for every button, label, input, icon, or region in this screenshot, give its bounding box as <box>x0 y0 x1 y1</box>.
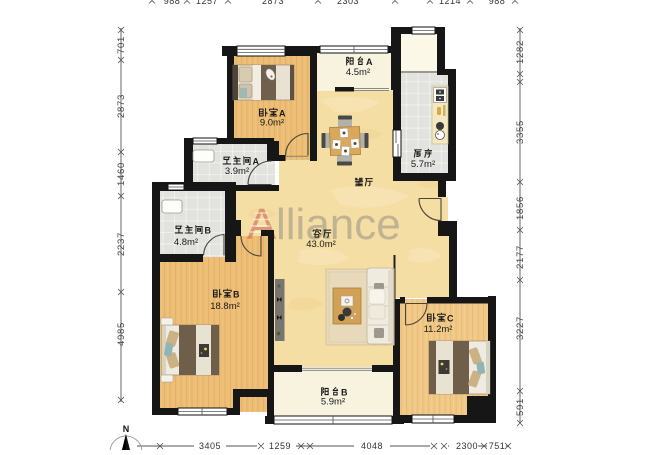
svg-text:1856: 1856 <box>515 196 526 220</box>
svg-text:3227: 3227 <box>515 316 526 340</box>
svg-text:1282: 1282 <box>515 40 526 64</box>
svg-text:4985: 4985 <box>116 322 127 346</box>
svg-text:4.5m²: 4.5m² <box>346 67 370 78</box>
svg-text:2300: 2300 <box>456 441 478 450</box>
svg-text:3355: 3355 <box>515 120 526 144</box>
svg-text:988: 988 <box>164 0 181 6</box>
svg-text:591: 591 <box>515 398 526 416</box>
svg-text:A: A <box>253 157 260 167</box>
svg-text:2237: 2237 <box>116 232 127 256</box>
svg-text:2177: 2177 <box>515 245 526 269</box>
svg-text:2873: 2873 <box>116 94 127 118</box>
svg-text:5.9m²: 5.9m² <box>321 397 345 408</box>
svg-text:988: 988 <box>489 0 506 6</box>
svg-text:701: 701 <box>116 36 127 54</box>
svg-text:9.0m²: 9.0m² <box>260 118 284 129</box>
svg-text:1259: 1259 <box>269 441 291 450</box>
svg-text:B: B <box>233 290 240 300</box>
svg-text:1214: 1214 <box>439 0 461 6</box>
svg-text:B: B <box>205 226 212 236</box>
svg-text:C: C <box>447 314 454 324</box>
svg-text:18.8m²: 18.8m² <box>210 301 240 312</box>
svg-text:11.2m²: 11.2m² <box>424 324 453 335</box>
svg-text:2873: 2873 <box>262 0 284 6</box>
svg-text:5.7m²: 5.7m² <box>411 159 435 170</box>
svg-text:3405: 3405 <box>199 441 221 450</box>
svg-text:1257: 1257 <box>196 0 218 6</box>
svg-text:43.0m²: 43.0m² <box>306 239 336 250</box>
svg-text:lliance: lliance <box>276 200 401 249</box>
svg-text:751: 751 <box>489 441 506 450</box>
svg-text:N: N <box>123 424 130 434</box>
svg-text:2303: 2303 <box>337 0 359 6</box>
svg-text:A: A <box>366 57 373 67</box>
svg-text:1460: 1460 <box>116 162 127 186</box>
svg-text:4.8m²: 4.8m² <box>174 237 198 248</box>
svg-text:3.9m²: 3.9m² <box>225 166 249 177</box>
svg-text:4048: 4048 <box>361 441 383 450</box>
